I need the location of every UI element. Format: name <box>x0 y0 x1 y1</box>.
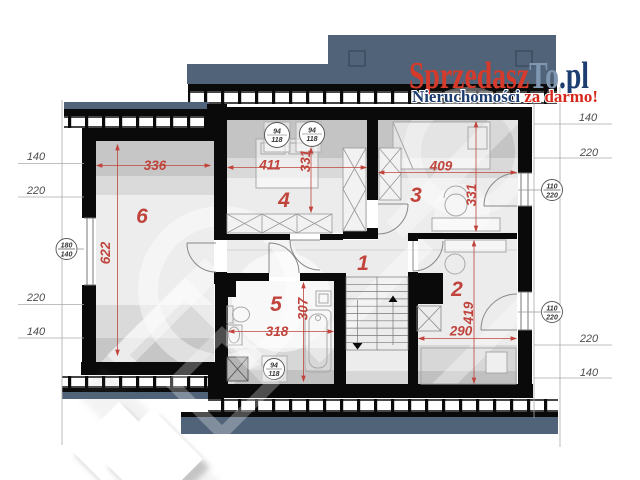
svg-text:220: 220 <box>545 315 558 322</box>
svg-text:110: 110 <box>546 184 557 191</box>
svg-text:220: 220 <box>579 147 599 159</box>
svg-text:140: 140 <box>27 326 46 338</box>
svg-text:118: 118 <box>271 137 282 144</box>
svg-text:Nieruchomości za darmo!: Nieruchomości za darmo! <box>412 87 598 106</box>
svg-text:411: 411 <box>258 158 281 173</box>
svg-text:94: 94 <box>270 363 278 370</box>
svg-text:110: 110 <box>546 306 557 313</box>
svg-text:6: 6 <box>136 205 148 228</box>
svg-text:419: 419 <box>461 301 476 325</box>
svg-text:180: 180 <box>61 243 73 250</box>
svg-text:140: 140 <box>27 151 46 163</box>
svg-text:3: 3 <box>410 184 422 207</box>
svg-text:318: 318 <box>266 324 289 339</box>
svg-text:220: 220 <box>26 292 46 304</box>
svg-text:336: 336 <box>144 158 167 173</box>
svg-text:2: 2 <box>450 278 463 301</box>
svg-text:220: 220 <box>545 193 558 200</box>
svg-text:4: 4 <box>277 189 290 212</box>
svg-text:5: 5 <box>270 293 282 316</box>
svg-text:140: 140 <box>61 252 73 259</box>
svg-text:331: 331 <box>464 184 479 207</box>
svg-text:409: 409 <box>429 159 453 174</box>
svg-text:118: 118 <box>306 136 317 143</box>
svg-text:140: 140 <box>579 112 598 124</box>
svg-text:331: 331 <box>298 150 313 173</box>
svg-text:290: 290 <box>449 324 473 339</box>
svg-text:307: 307 <box>296 296 311 320</box>
svg-text:1: 1 <box>357 252 369 275</box>
svg-text:94: 94 <box>273 129 281 136</box>
svg-text:622: 622 <box>98 241 113 264</box>
svg-text:140: 140 <box>580 367 599 379</box>
svg-text:220: 220 <box>26 185 46 197</box>
svg-text:220: 220 <box>579 333 599 345</box>
svg-text:94: 94 <box>308 128 316 135</box>
